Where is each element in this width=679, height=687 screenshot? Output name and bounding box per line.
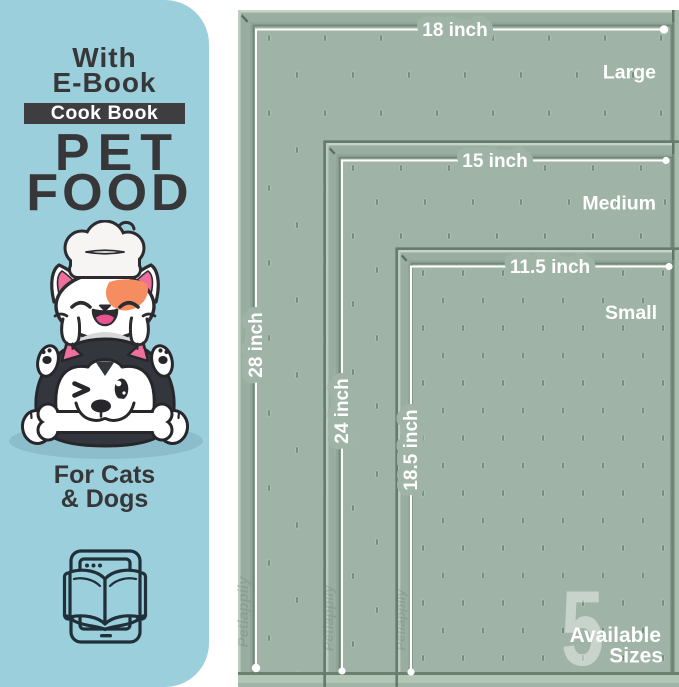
svg-text:24 inch: 24 inch [332,378,353,443]
svg-text:18.5 inch: 18.5 inch [401,409,422,490]
svg-text:11.5 inch: 11.5 inch [510,257,590,278]
svg-text:Medium: Medium [582,193,656,215]
svg-text:Petlappily: Petlappily [235,576,252,648]
svg-text:28 inch: 28 inch [246,312,267,377]
svg-text:Small: Small [605,302,657,324]
svg-text:18 inch: 18 inch [422,20,487,41]
svg-text:Sizes: Sizes [609,645,663,668]
svg-text:15 inch: 15 inch [462,151,527,172]
svg-text:Large: Large [603,62,656,84]
svg-text:Petlappily: Petlappily [320,584,336,651]
svg-text:Petlappily: Petlappily [393,589,408,651]
